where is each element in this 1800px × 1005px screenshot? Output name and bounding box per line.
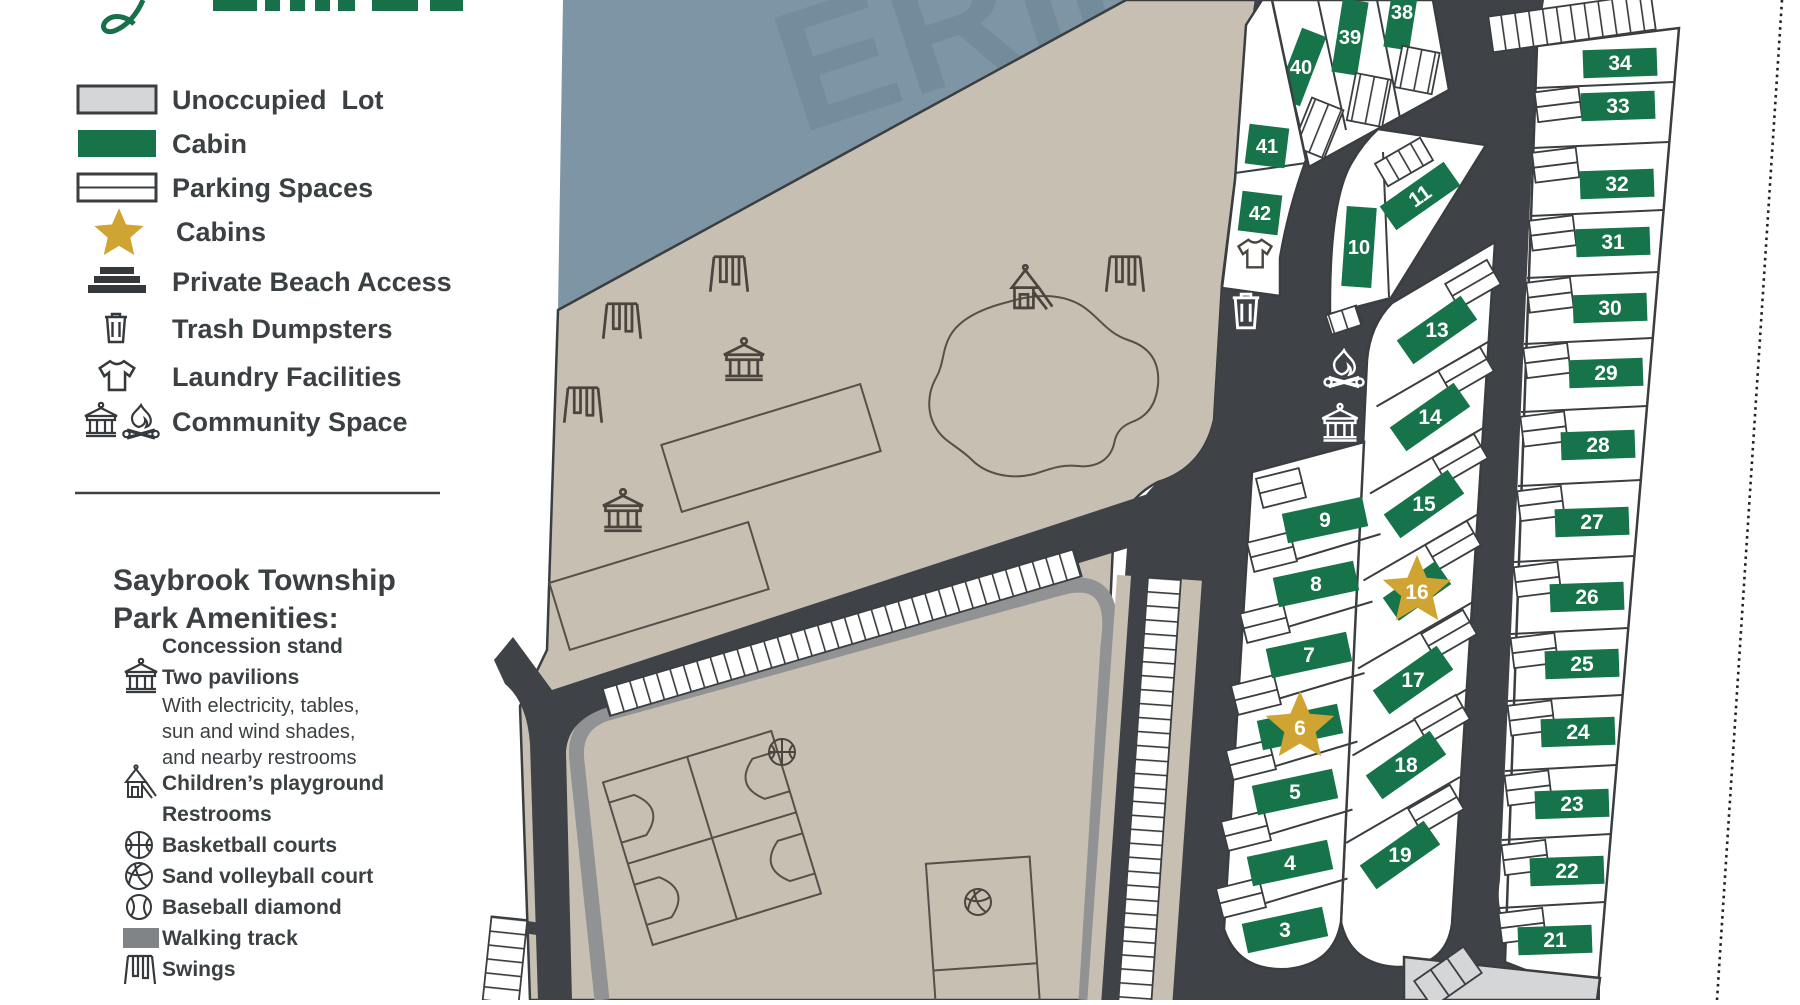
svg-text:8: 8 xyxy=(1310,573,1322,596)
svg-text:and nearby restrooms: and nearby restrooms xyxy=(162,747,357,769)
svg-text:41: 41 xyxy=(1256,136,1278,158)
svg-text:Basketball courts: Basketball courts xyxy=(162,834,337,857)
svg-text:28: 28 xyxy=(1586,434,1610,457)
svg-text:Private Beach Access: Private Beach Access xyxy=(172,267,452,297)
svg-text:30: 30 xyxy=(1598,297,1621,320)
svg-text:26: 26 xyxy=(1575,586,1598,609)
svg-text:10: 10 xyxy=(1348,237,1370,259)
svg-text:15: 15 xyxy=(1412,493,1436,516)
svg-text:Sand volleyball court: Sand volleyball court xyxy=(162,865,373,888)
svg-text:16: 16 xyxy=(1405,581,1428,604)
svg-text:23: 23 xyxy=(1560,793,1583,816)
svg-text:Two pavilions: Two pavilions xyxy=(162,666,299,689)
svg-text:Trash Dumpsters: Trash Dumpsters xyxy=(172,314,393,344)
svg-text:24: 24 xyxy=(1566,721,1590,744)
svg-text:Parking Spaces: Parking Spaces xyxy=(172,173,373,203)
svg-text:33: 33 xyxy=(1606,95,1629,118)
svg-text:31: 31 xyxy=(1601,231,1625,254)
svg-text:Saybrook Township: Saybrook Township xyxy=(113,564,396,597)
svg-text:40: 40 xyxy=(1290,57,1312,79)
svg-text:21: 21 xyxy=(1543,929,1567,952)
svg-text:13: 13 xyxy=(1425,319,1448,342)
svg-text:Unoccupied Lot: Unoccupied Lot xyxy=(172,85,384,115)
svg-text:Cabins: Cabins xyxy=(176,217,266,247)
svg-text:17: 17 xyxy=(1401,669,1424,692)
svg-text:Laundry Facilities: Laundry Facilities xyxy=(172,362,402,392)
svg-text:42: 42 xyxy=(1249,203,1271,225)
svg-text:7: 7 xyxy=(1303,644,1315,667)
svg-text:38: 38 xyxy=(1391,2,1413,24)
svg-text:With electricity, tables,: With electricity, tables, xyxy=(162,695,359,717)
svg-text:6: 6 xyxy=(1294,717,1306,740)
svg-text:22: 22 xyxy=(1555,860,1578,883)
svg-text:9: 9 xyxy=(1319,509,1331,532)
svg-text:Community Space: Community Space xyxy=(172,407,408,437)
svg-text:19: 19 xyxy=(1388,844,1411,867)
svg-text:27: 27 xyxy=(1580,511,1603,534)
svg-text:Park Amenities:: Park Amenities: xyxy=(113,602,339,635)
svg-text:34: 34 xyxy=(1608,52,1632,75)
svg-text:25: 25 xyxy=(1570,653,1594,676)
svg-text:Cabin: Cabin xyxy=(172,129,247,159)
svg-text:14: 14 xyxy=(1418,406,1442,429)
svg-text:sun and wind shades,: sun and wind shades, xyxy=(162,721,355,743)
svg-text:18: 18 xyxy=(1394,754,1418,777)
svg-text:Baseball diamond: Baseball diamond xyxy=(162,896,342,919)
svg-text:39: 39 xyxy=(1339,27,1361,49)
svg-text:29: 29 xyxy=(1594,362,1617,385)
svg-text:32: 32 xyxy=(1605,173,1628,196)
svg-text:3: 3 xyxy=(1279,919,1291,942)
svg-text:Walking track: Walking track xyxy=(162,927,298,950)
svg-text:Swings: Swings xyxy=(162,958,236,981)
svg-text:5: 5 xyxy=(1289,781,1301,804)
svg-text:4: 4 xyxy=(1284,852,1296,875)
svg-text:Restrooms: Restrooms xyxy=(162,803,272,826)
svg-text:Concession stand: Concession stand xyxy=(162,635,343,658)
svg-text:Children’s playground: Children’s playground xyxy=(162,772,384,795)
